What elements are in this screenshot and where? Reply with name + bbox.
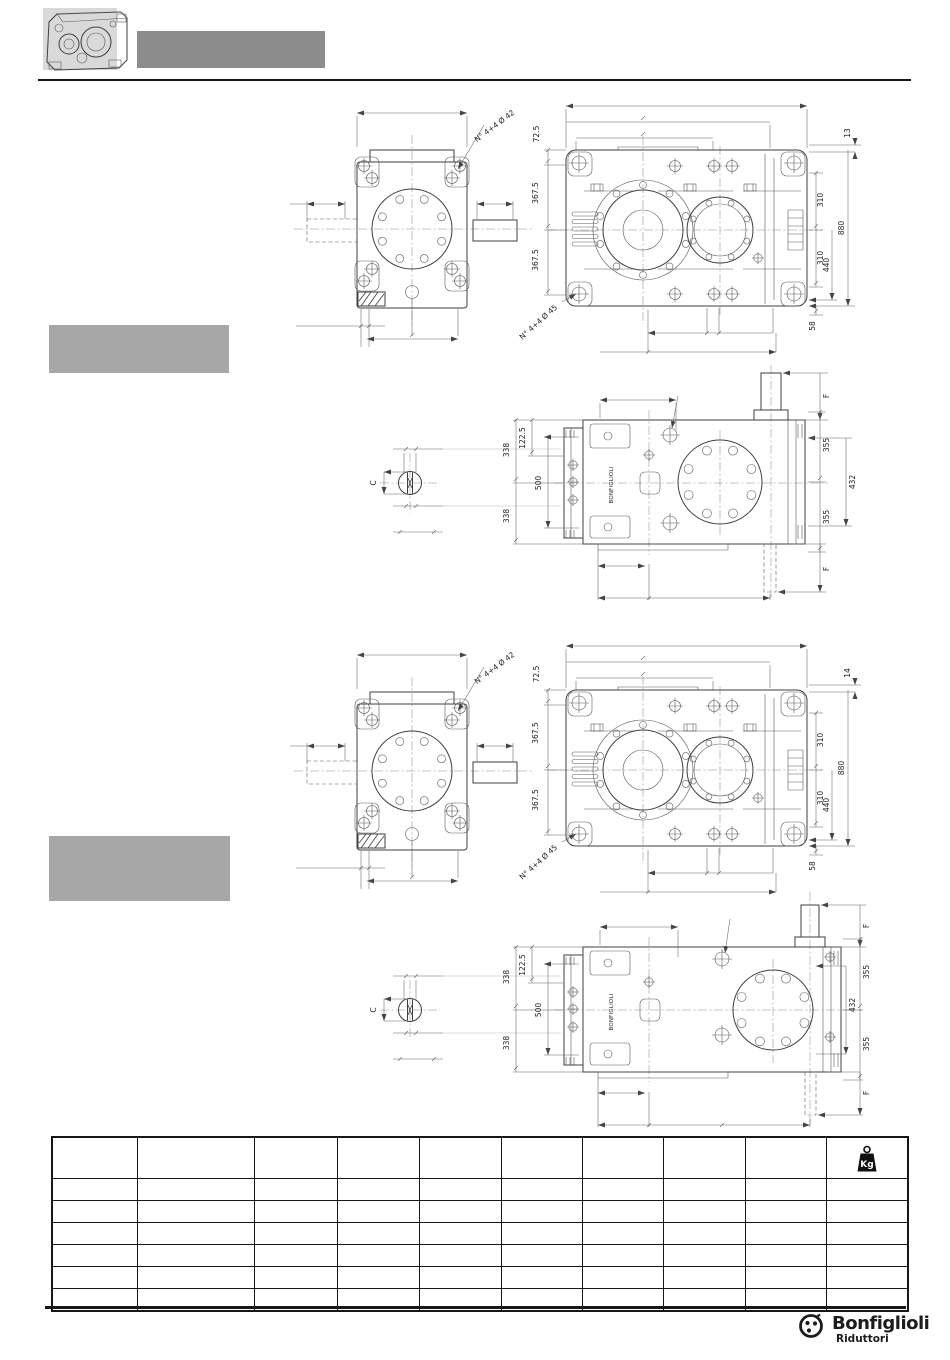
table-cell xyxy=(52,1223,137,1245)
table-cell xyxy=(337,1245,419,1267)
corner-pads xyxy=(568,692,805,846)
input-shaft-hidden xyxy=(307,761,357,784)
dim-367-5-a: 367.5 xyxy=(531,722,540,744)
drain-plug xyxy=(358,834,385,848)
table-cell xyxy=(137,1201,254,1223)
table-cell xyxy=(254,1245,337,1267)
table-header-cell-weight: Kg xyxy=(826,1137,908,1179)
table-row xyxy=(52,1201,908,1223)
dim-f-top: F xyxy=(822,394,831,398)
table-cell xyxy=(419,1267,501,1289)
section-title-placeholder xyxy=(137,31,325,68)
table-cell xyxy=(663,1179,745,1201)
dim-880: 880 xyxy=(837,221,846,236)
dim-72-5: 72.5 xyxy=(532,125,541,142)
table-cell xyxy=(52,1267,137,1289)
table-cell xyxy=(419,1245,501,1267)
table-cell xyxy=(663,1267,745,1289)
drain-plug xyxy=(358,292,385,306)
table-header-cell xyxy=(52,1137,137,1179)
table-cell xyxy=(137,1179,254,1201)
dim-122-5: 122.5 xyxy=(518,427,527,449)
dim-367-5-b: 367.5 xyxy=(531,249,540,271)
table-cell xyxy=(826,1201,908,1223)
table-cell xyxy=(137,1245,254,1267)
brand-division: Riduttori xyxy=(836,1333,889,1345)
table-cell xyxy=(254,1201,337,1223)
table-row xyxy=(52,1267,908,1289)
table-cell xyxy=(52,1245,137,1267)
table-header-cell xyxy=(501,1137,582,1179)
table-cell xyxy=(826,1245,908,1267)
dim-338-a: 338 xyxy=(502,443,511,458)
dim-310-a: 310 xyxy=(816,193,825,208)
table-cell xyxy=(826,1223,908,1245)
input-shaft-top xyxy=(754,373,788,420)
dim-500: 500 xyxy=(534,476,543,491)
dim-338-b: 338 xyxy=(502,509,511,524)
side-view-drawing-2: C BONFIGLIOLI xyxy=(368,887,888,1135)
table-header-row: Kg xyxy=(52,1137,908,1179)
bonfiglioli-logo-icon xyxy=(796,1312,830,1342)
dim-440: 440 xyxy=(822,258,831,273)
section-c-label: C xyxy=(369,480,378,485)
dimensions-table: Kg xyxy=(51,1136,909,1312)
shaft-hidden-bottom xyxy=(805,1072,816,1115)
dim-338-a: 338 xyxy=(502,970,511,985)
plan-view-drawing-2: 72.5 367.5 367.5 14 310 310 880 440 58 N… xyxy=(518,628,950,918)
table-cell xyxy=(501,1245,582,1267)
dim-440: 440 xyxy=(822,798,831,813)
table-cell xyxy=(419,1223,501,1245)
table-header-cell xyxy=(419,1137,501,1179)
table-cell xyxy=(745,1201,826,1223)
catalog-page: N° 4+4 Ø 42 xyxy=(0,0,950,1360)
table-cell xyxy=(254,1223,337,1245)
table-row xyxy=(52,1245,908,1267)
table-cell xyxy=(826,1267,908,1289)
table-cell xyxy=(663,1245,745,1267)
table-row xyxy=(52,1179,908,1201)
table-header-cell xyxy=(745,1137,826,1179)
kg-weight-icon: Kg xyxy=(854,1145,880,1175)
table-cell xyxy=(745,1245,826,1267)
footer-rule xyxy=(45,1306,906,1309)
table-cell xyxy=(745,1267,826,1289)
dim-355-b: 355 xyxy=(862,1037,871,1052)
table-header-cell xyxy=(254,1137,337,1179)
table-cell xyxy=(501,1223,582,1245)
table-header-cell xyxy=(137,1137,254,1179)
dim-338-b: 338 xyxy=(502,1036,511,1051)
variant-label-placeholder-1 xyxy=(49,325,229,373)
dim-122-5: 122.5 xyxy=(518,954,527,976)
table-cell xyxy=(501,1201,582,1223)
table-header-cell xyxy=(663,1137,745,1179)
table-header-cell xyxy=(582,1137,663,1179)
dim-58: 58 xyxy=(808,321,817,331)
dim-355-b: 355 xyxy=(822,510,831,525)
table-cell xyxy=(52,1201,137,1223)
corner-pads xyxy=(568,152,805,306)
variant-label-placeholder-2 xyxy=(49,836,230,901)
table-cell xyxy=(663,1223,745,1245)
table-cell xyxy=(582,1201,663,1223)
dim-72-5: 72.5 xyxy=(532,665,541,682)
table-cell xyxy=(663,1201,745,1223)
bolt-note-label: N° 4+4 Ø 45 xyxy=(518,303,560,342)
bolt-note-label: N° 4+4 Ø 42 xyxy=(473,108,517,144)
table-cell xyxy=(137,1267,254,1289)
shaft-section-detail: C xyxy=(369,974,561,1061)
brand-name: Bonfiglioli xyxy=(832,1313,929,1334)
table-cell xyxy=(501,1179,582,1201)
dim-f-bottom: F xyxy=(862,1091,871,1095)
table-cell xyxy=(337,1179,419,1201)
dim-432: 432 xyxy=(848,475,857,490)
dim-355-a: 355 xyxy=(822,438,831,453)
table-cell xyxy=(419,1179,501,1201)
table-body xyxy=(52,1179,908,1312)
header-rule xyxy=(38,79,911,81)
table-cell xyxy=(52,1179,137,1201)
table-cell xyxy=(337,1223,419,1245)
dim-367-5-b: 367.5 xyxy=(531,789,540,811)
table-cell xyxy=(582,1245,663,1267)
table-cell xyxy=(582,1223,663,1245)
dim-880: 880 xyxy=(837,761,846,776)
table-cell xyxy=(337,1267,419,1289)
section-c-label: C xyxy=(369,1007,378,1012)
table-cell xyxy=(582,1267,663,1289)
table-cell xyxy=(137,1223,254,1245)
dim-367-5-a: 367.5 xyxy=(531,182,540,204)
table-cell xyxy=(254,1179,337,1201)
table-cell xyxy=(501,1267,582,1289)
table-cell xyxy=(254,1267,337,1289)
front-view-drawing-1: N° 4+4 Ø 42 xyxy=(288,95,543,357)
dim-offset: 13 xyxy=(843,128,852,138)
table-cell xyxy=(745,1179,826,1201)
dim-f-top: F xyxy=(862,924,871,928)
table-header-cell xyxy=(337,1137,419,1179)
bolt-note-label: N° 4+4 Ø 42 xyxy=(473,650,517,686)
input-shaft-hidden xyxy=(307,219,357,242)
table-cell xyxy=(582,1179,663,1201)
nameplate-text: BONFIGLIOLI xyxy=(609,993,615,1030)
table-cell xyxy=(337,1201,419,1223)
bolt-note-label: N° 4+4 Ø 45 xyxy=(518,843,560,882)
plan-view-drawing-1: 72.5 367.5 367.5 13 310 310 880 440 58 N… xyxy=(518,88,950,378)
dim-offset: 14 xyxy=(843,668,852,678)
dim-500: 500 xyxy=(534,1003,543,1018)
dim-432: 432 xyxy=(848,998,857,1013)
output-shaft xyxy=(473,762,517,783)
table-row xyxy=(52,1223,908,1245)
table-cell xyxy=(826,1179,908,1201)
dim-355-a: 355 xyxy=(862,965,871,980)
table-cell xyxy=(745,1223,826,1245)
front-view-drawing-2: N° 4+4 Ø 42 xyxy=(288,637,543,899)
kg-label: Kg xyxy=(860,1160,873,1170)
table-cell xyxy=(419,1201,501,1223)
gearbox-thumbnail xyxy=(33,2,137,76)
dim-310-a: 310 xyxy=(816,733,825,748)
output-shaft xyxy=(473,220,517,241)
side-view-drawing-1: C BONFIGLIOLI xyxy=(368,360,888,608)
nameplate-text: BONFIGLIOLI xyxy=(609,466,615,503)
shaft-hidden-bottom xyxy=(764,544,776,592)
dim-58: 58 xyxy=(808,861,817,871)
dim-f-bottom: F xyxy=(822,567,831,571)
shaft-section-detail: C xyxy=(369,447,561,534)
